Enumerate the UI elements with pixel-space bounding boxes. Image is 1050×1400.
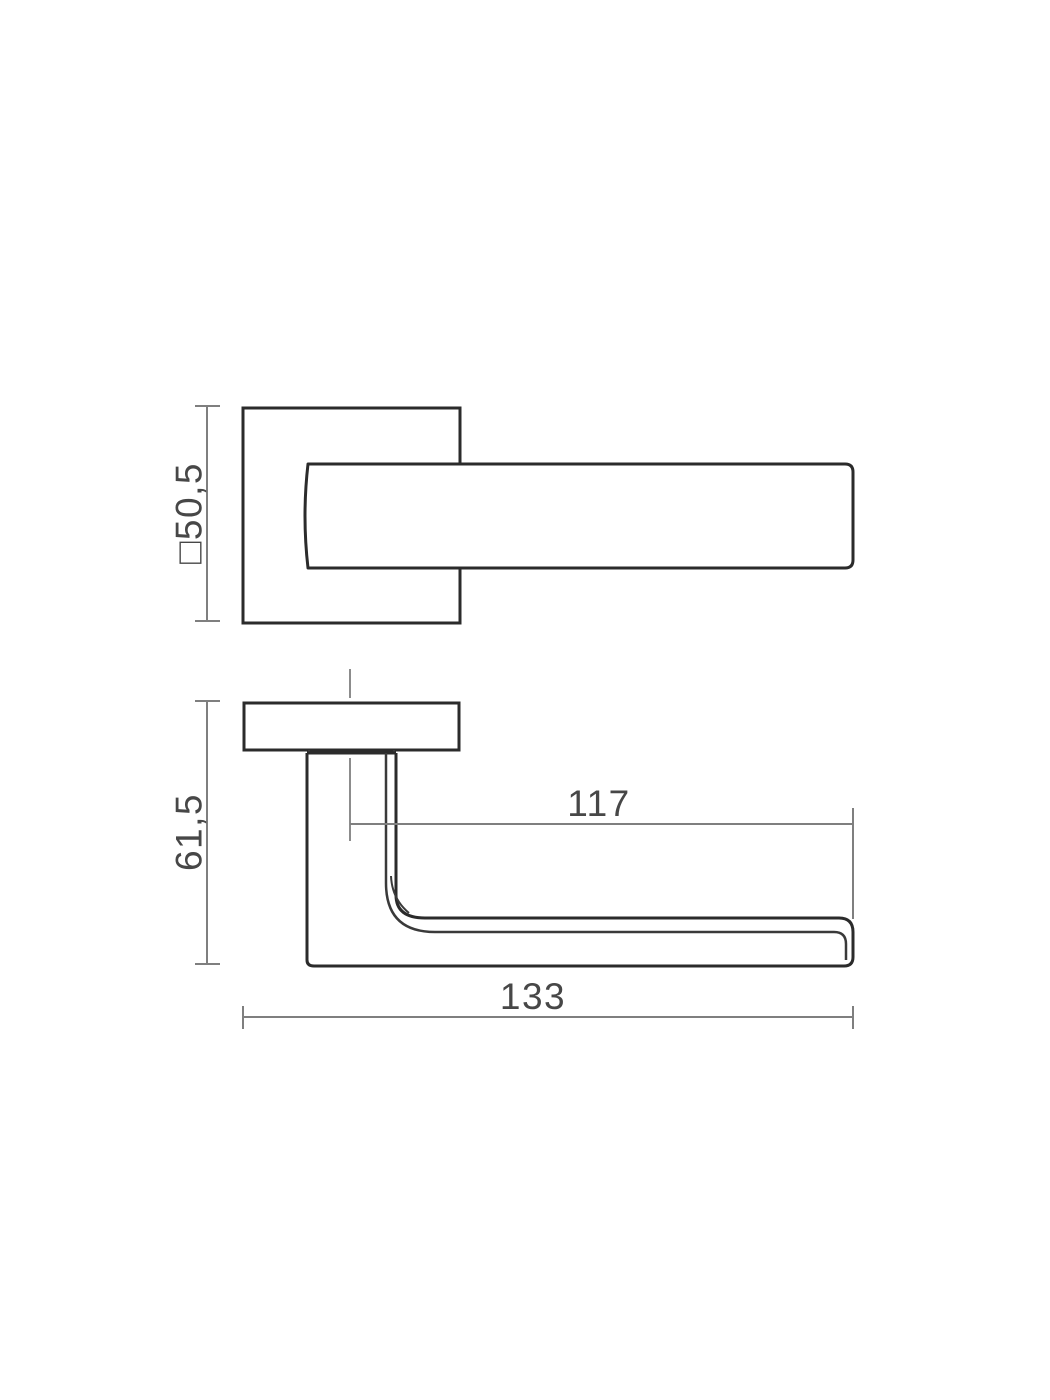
- grip-length-dimension-label: 117: [567, 783, 631, 824]
- side-view: [244, 669, 853, 966]
- front-view: [243, 408, 853, 623]
- overall-length-dimension-label: 133: [500, 976, 566, 1017]
- rose-side-outline: [244, 703, 459, 750]
- handle-front-outline: [305, 464, 853, 568]
- door-handle-technical-drawing: □50,5: [0, 0, 1050, 1400]
- technical-drawing-page: □50,5: [0, 0, 1050, 1400]
- rose-size-dimension-label: □50,5: [169, 462, 210, 564]
- height-dimension-label: 61,5: [169, 793, 210, 871]
